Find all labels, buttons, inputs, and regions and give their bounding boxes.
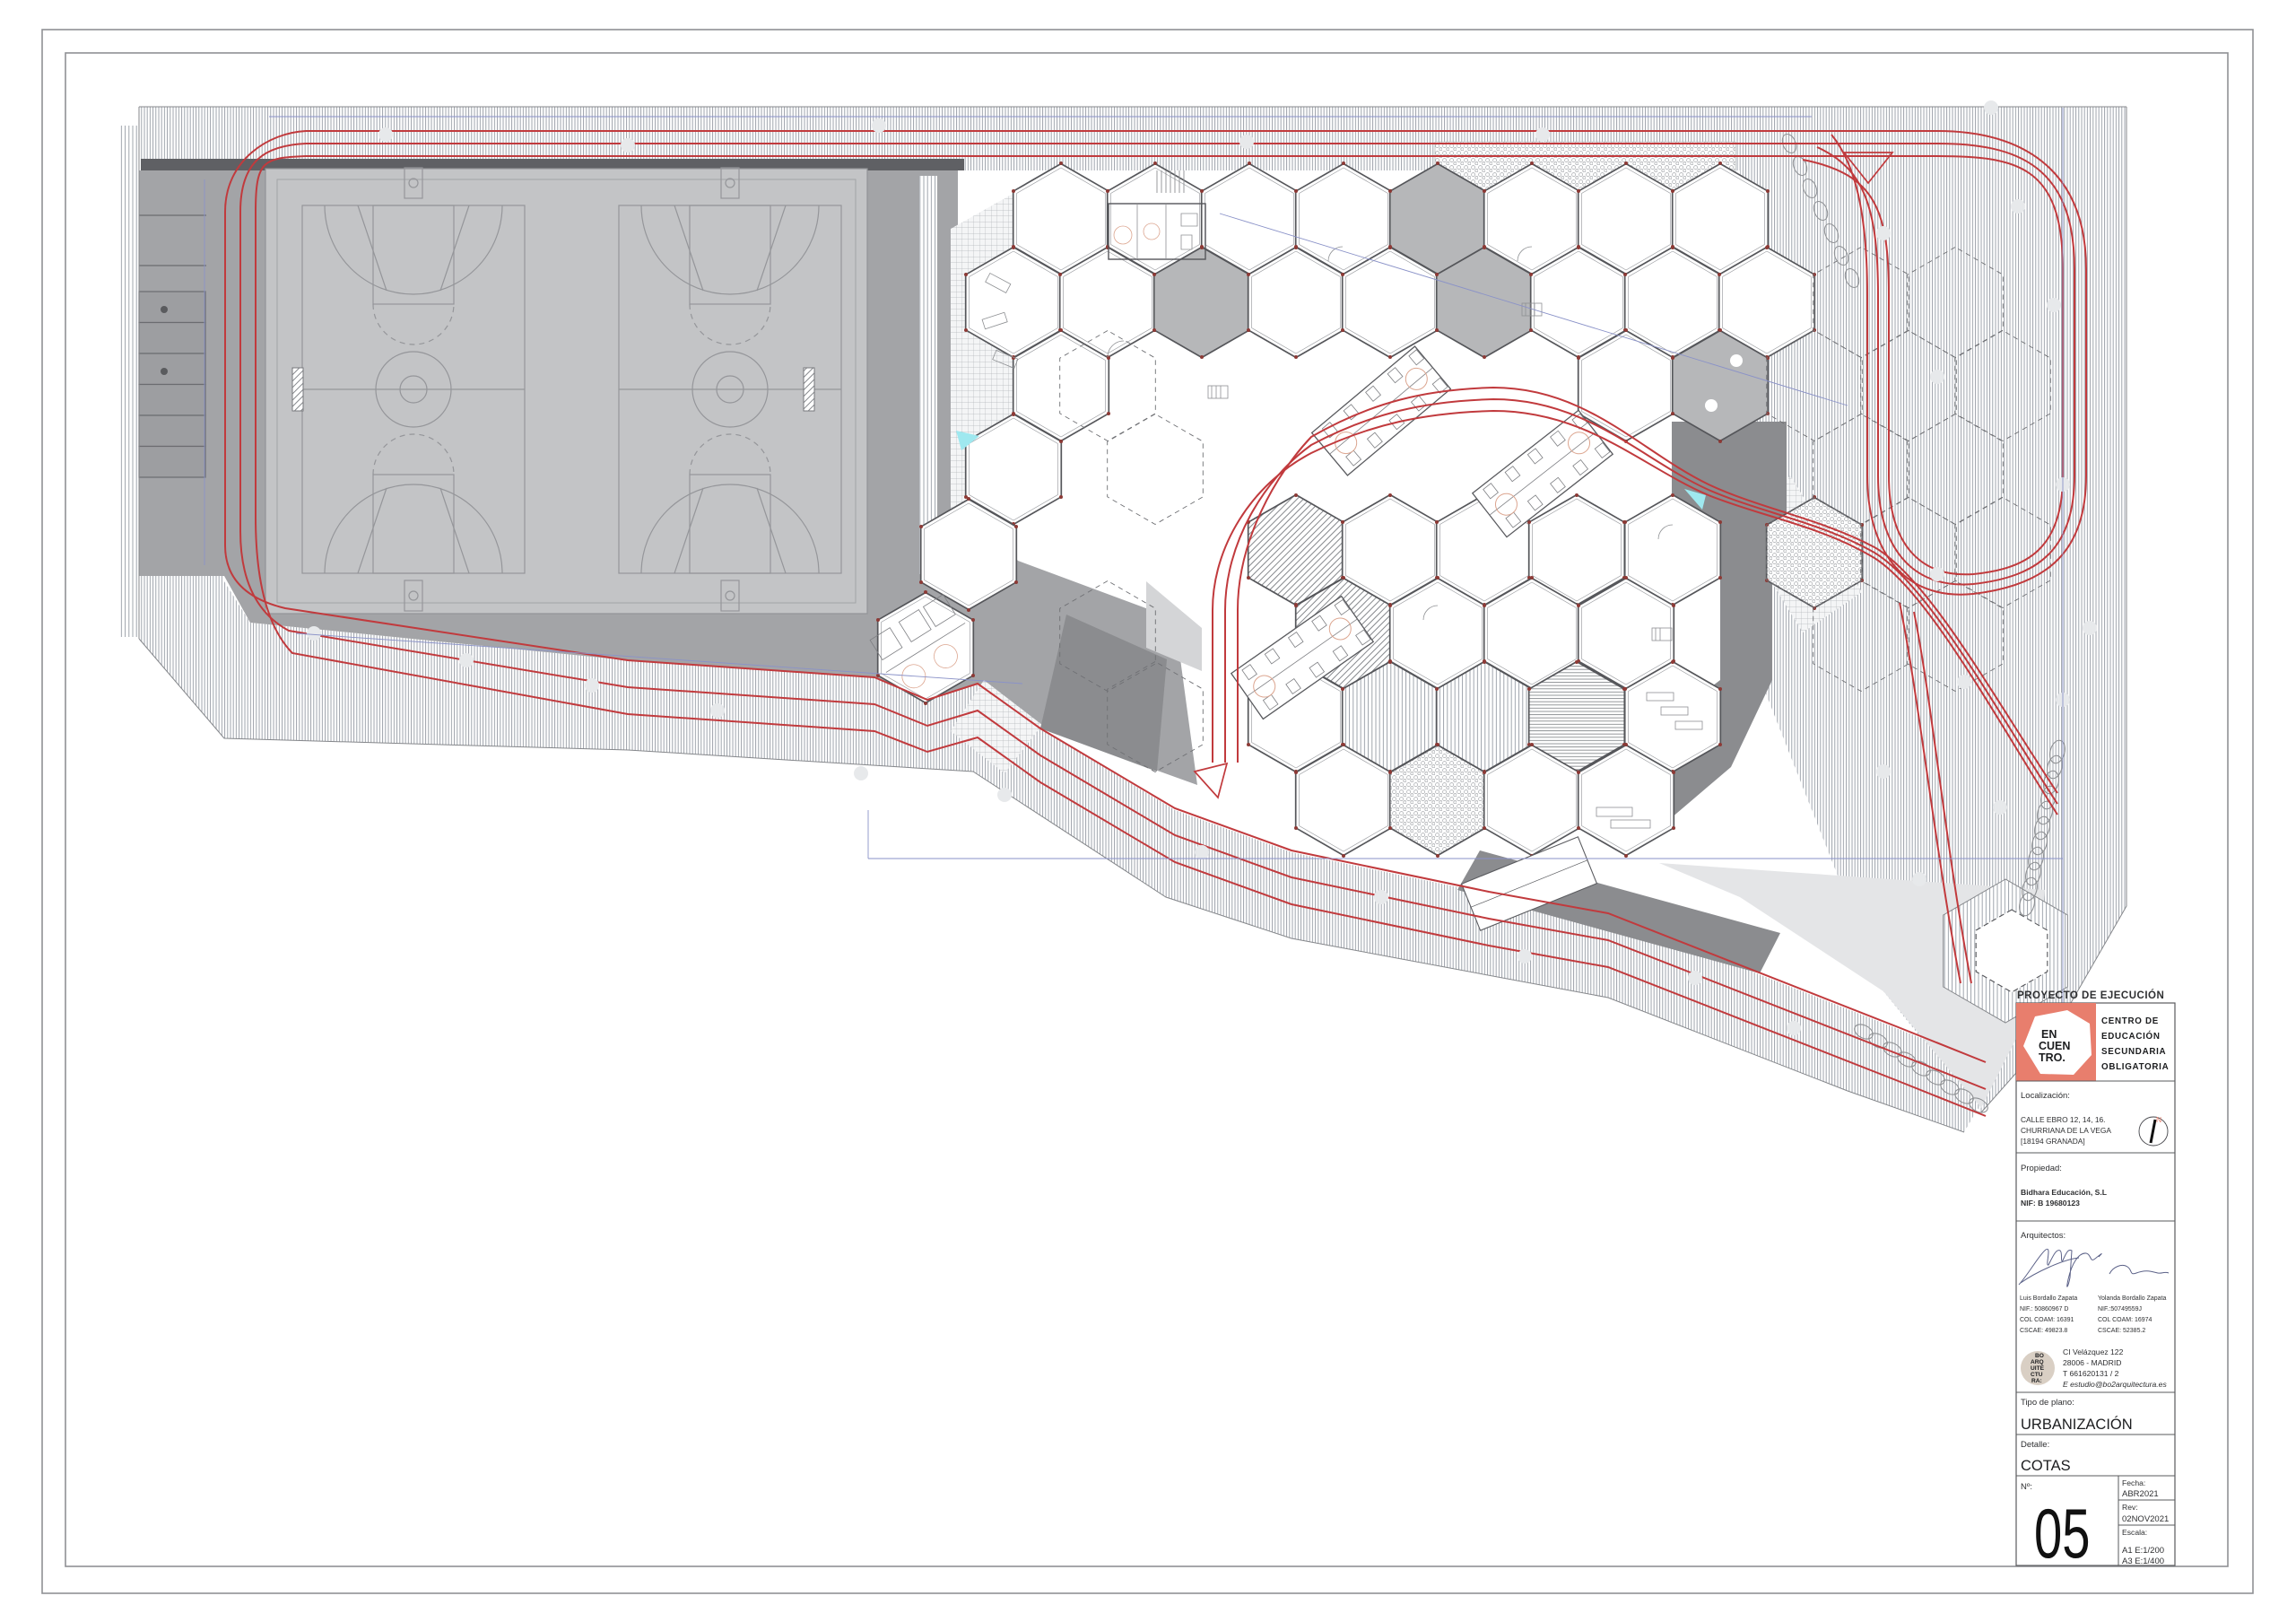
svg-text:NIF: B 19680123: NIF: B 19680123 <box>2021 1199 2080 1208</box>
svg-text:Nº:: Nº: <box>2021 1482 2032 1492</box>
svg-text:UITE: UITE <box>2031 1365 2045 1372</box>
svg-text:SECUNDARIA: SECUNDARIA <box>2101 1047 2166 1057</box>
svg-text:NIF.: 50860967 D: NIF.: 50860967 D <box>2020 1306 2068 1312</box>
svg-text:Yolanda Bordallo Zapata: Yolanda Bordallo Zapata <box>2098 1295 2167 1302</box>
svg-text:CSCAE: 52385.2: CSCAE: 52385.2 <box>2098 1328 2145 1334</box>
svg-text:CTU: CTU <box>2031 1372 2043 1378</box>
svg-text:N: N <box>2156 1115 2161 1124</box>
svg-text:Propiedad:: Propiedad: <box>2021 1164 2062 1173</box>
svg-text:COL COAM: 16974: COL COAM: 16974 <box>2098 1317 2152 1323</box>
svg-text:05: 05 <box>2034 1495 2090 1573</box>
svg-text:T 661620131 / 2: T 661620131 / 2 <box>2063 1369 2119 1378</box>
svg-text:Bidhara Educación, S.L: Bidhara Educación, S.L <box>2021 1188 2107 1197</box>
svg-text:NIF.:50749559J: NIF.:50749559J <box>2098 1306 2142 1312</box>
svg-text:ABR2021: ABR2021 <box>2122 1489 2159 1499</box>
svg-text:CI Velázquez 122: CI Velázquez 122 <box>2063 1347 2124 1356</box>
svg-text:URBANIZACIÓN: URBANIZACIÓN <box>2021 1416 2133 1433</box>
svg-text:Fecha:: Fecha: <box>2122 1478 2145 1487</box>
svg-text:[18194 GRANADA]: [18194 GRANADA] <box>2021 1137 2085 1146</box>
svg-text:COTAS: COTAS <box>2021 1458 2071 1474</box>
svg-text:Detalle:: Detalle: <box>2021 1440 2049 1450</box>
svg-text:Tipo de plano:: Tipo de plano: <box>2021 1398 2074 1408</box>
svg-text:EN: EN <box>2041 1028 2057 1041</box>
svg-text:Arquitectos:: Arquitectos: <box>2021 1231 2066 1241</box>
svg-text:CUEN: CUEN <box>2039 1040 2070 1052</box>
svg-text:E estudio@bo2arquitectura.es: E estudio@bo2arquitectura.es <box>2063 1380 2167 1389</box>
svg-text:COL COAM: 16391: COL COAM: 16391 <box>2020 1317 2074 1323</box>
svg-text:Luis Bordallo Zapata: Luis Bordallo Zapata <box>2020 1295 2077 1302</box>
svg-text:Escala:: Escala: <box>2122 1528 2147 1537</box>
svg-text:OBLIGATORIA: OBLIGATORIA <box>2101 1062 2169 1072</box>
svg-text:CSCAE: 49823.8: CSCAE: 49823.8 <box>2020 1328 2067 1334</box>
svg-text:CHURRIANA DE LA VEGA: CHURRIANA DE LA VEGA <box>2021 1126 2111 1135</box>
svg-text:A3 E:1/400: A3 E:1/400 <box>2122 1557 2164 1566</box>
svg-text:CENTRO DE: CENTRO DE <box>2101 1016 2159 1026</box>
svg-text:RA:: RA: <box>2031 1378 2042 1384</box>
svg-text:02NOV2021: 02NOV2021 <box>2122 1514 2169 1524</box>
svg-text:PROYECTO DE EJECUCIÓN: PROYECTO DE EJECUCIÓN <box>2017 990 2164 1001</box>
svg-text:TRO.: TRO. <box>2039 1051 2066 1064</box>
svg-text:28006 - MADRID: 28006 - MADRID <box>2063 1358 2121 1367</box>
svg-text:EDUCACIÓN: EDUCACIÓN <box>2101 1031 2161 1042</box>
svg-text:CALLE EBRO 12, 14, 16.: CALLE EBRO 12, 14, 16. <box>2021 1115 2106 1124</box>
svg-text:Rev:: Rev: <box>2122 1503 2138 1512</box>
svg-text:BO: BO <box>2035 1353 2044 1359</box>
svg-text:ARQ: ARQ <box>2031 1359 2044 1365</box>
svg-text:Localización:: Localización: <box>2021 1091 2070 1101</box>
svg-text:A1 E:1/200: A1 E:1/200 <box>2122 1546 2164 1556</box>
